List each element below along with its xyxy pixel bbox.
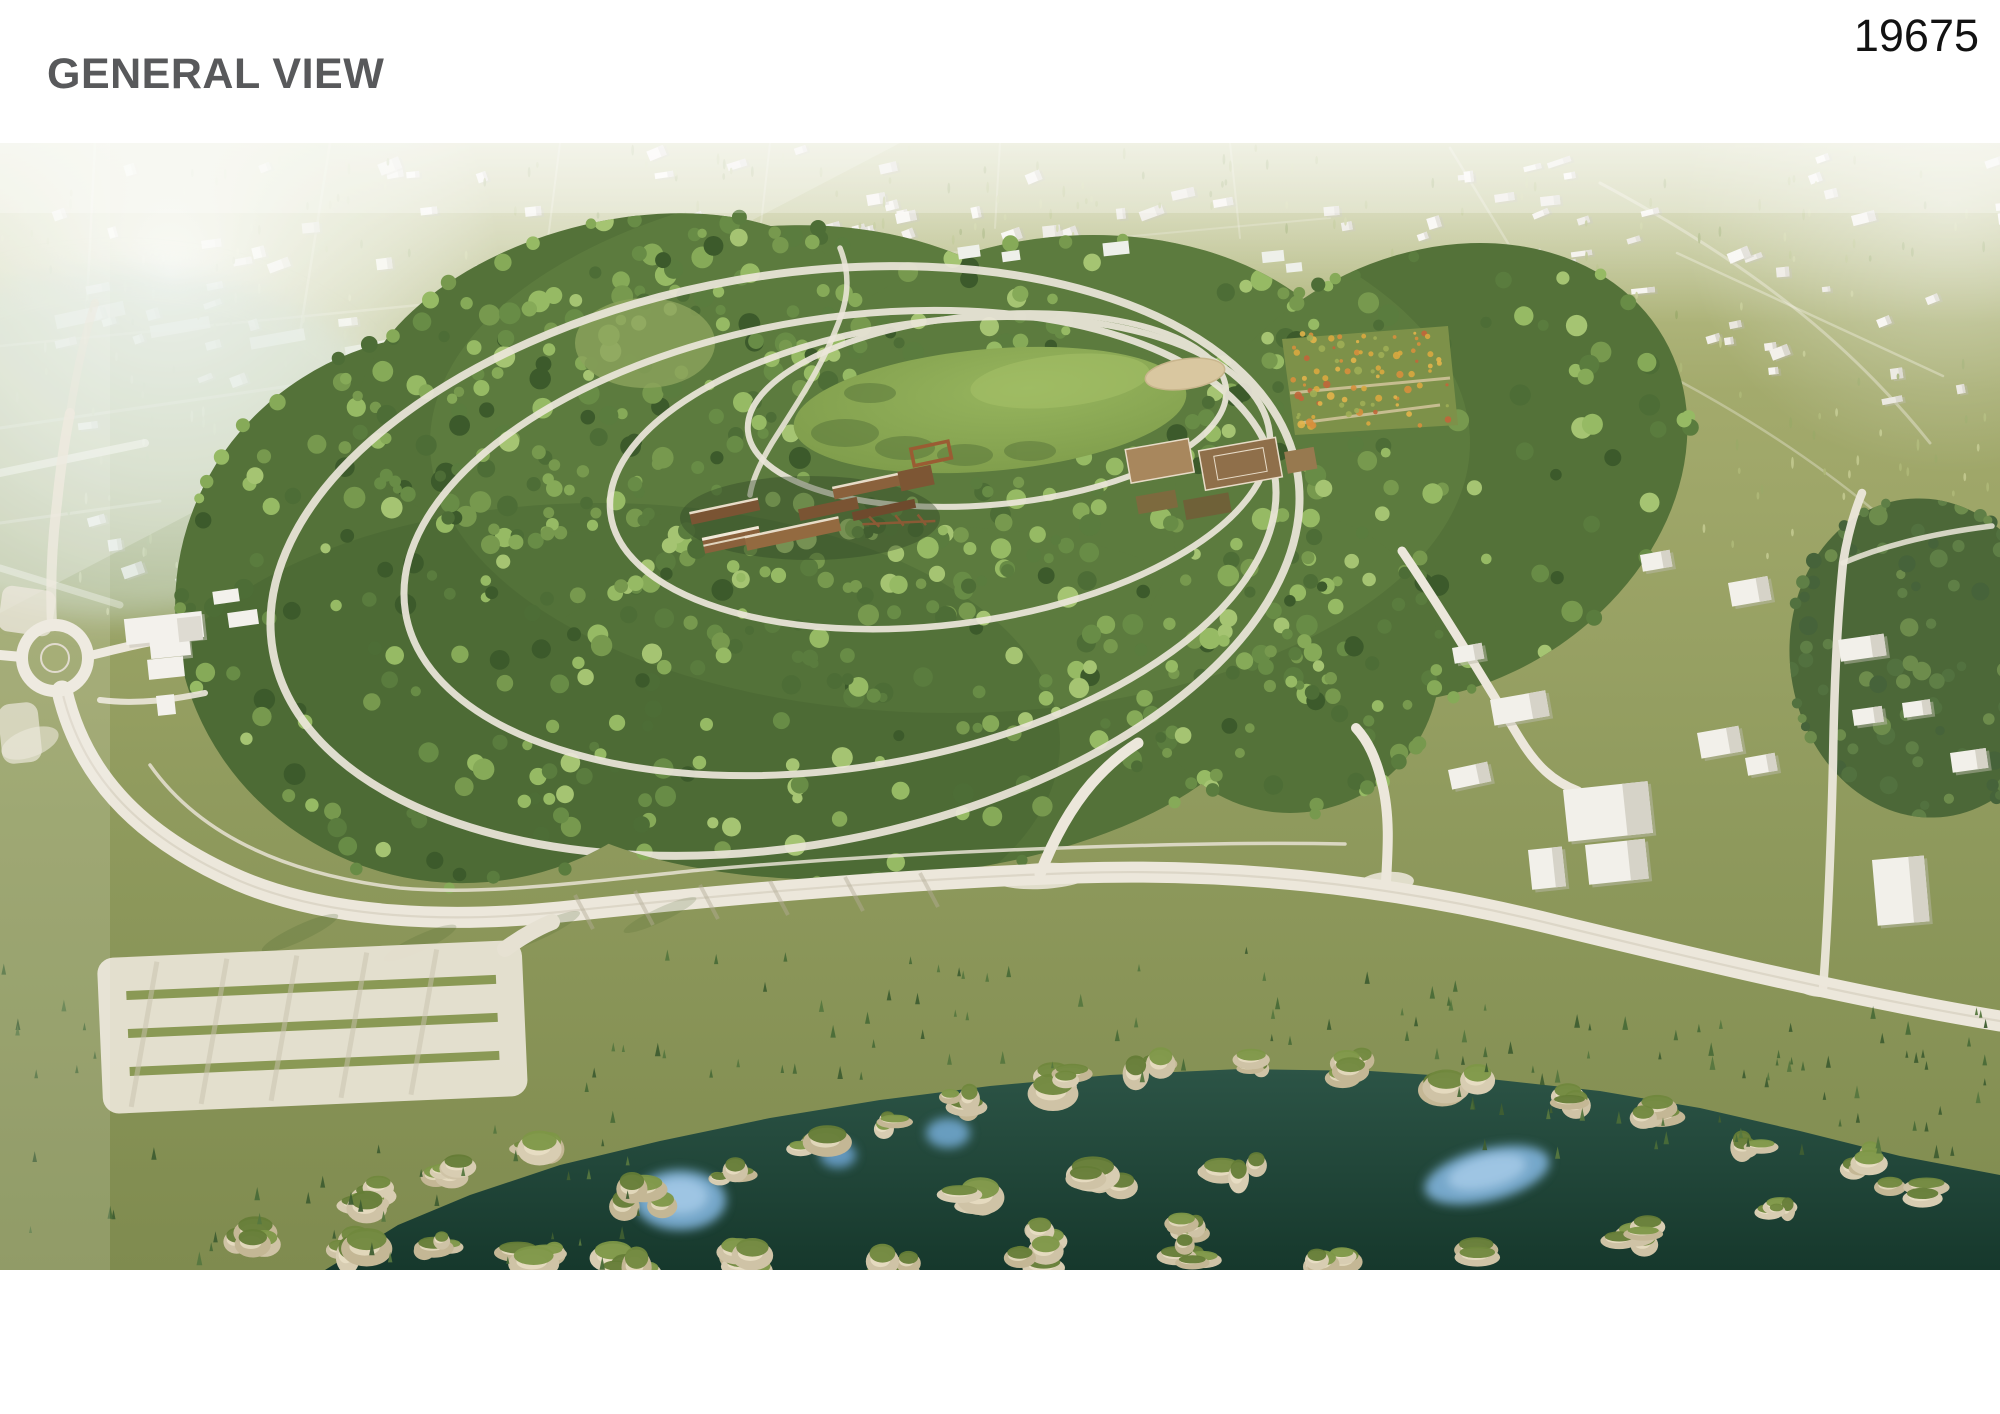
- aerial-render-scene: [0, 143, 2000, 1270]
- competition-board-page: { "header": { "title": "GENERAL VIEW", "…: [0, 0, 2000, 1414]
- aerial-render: [0, 143, 2000, 1270]
- parking-lot: [97, 940, 528, 1114]
- flower-garden: [1282, 326, 1458, 435]
- entry-number: 19675: [1854, 10, 1979, 62]
- page-title: GENERAL VIEW: [47, 50, 384, 99]
